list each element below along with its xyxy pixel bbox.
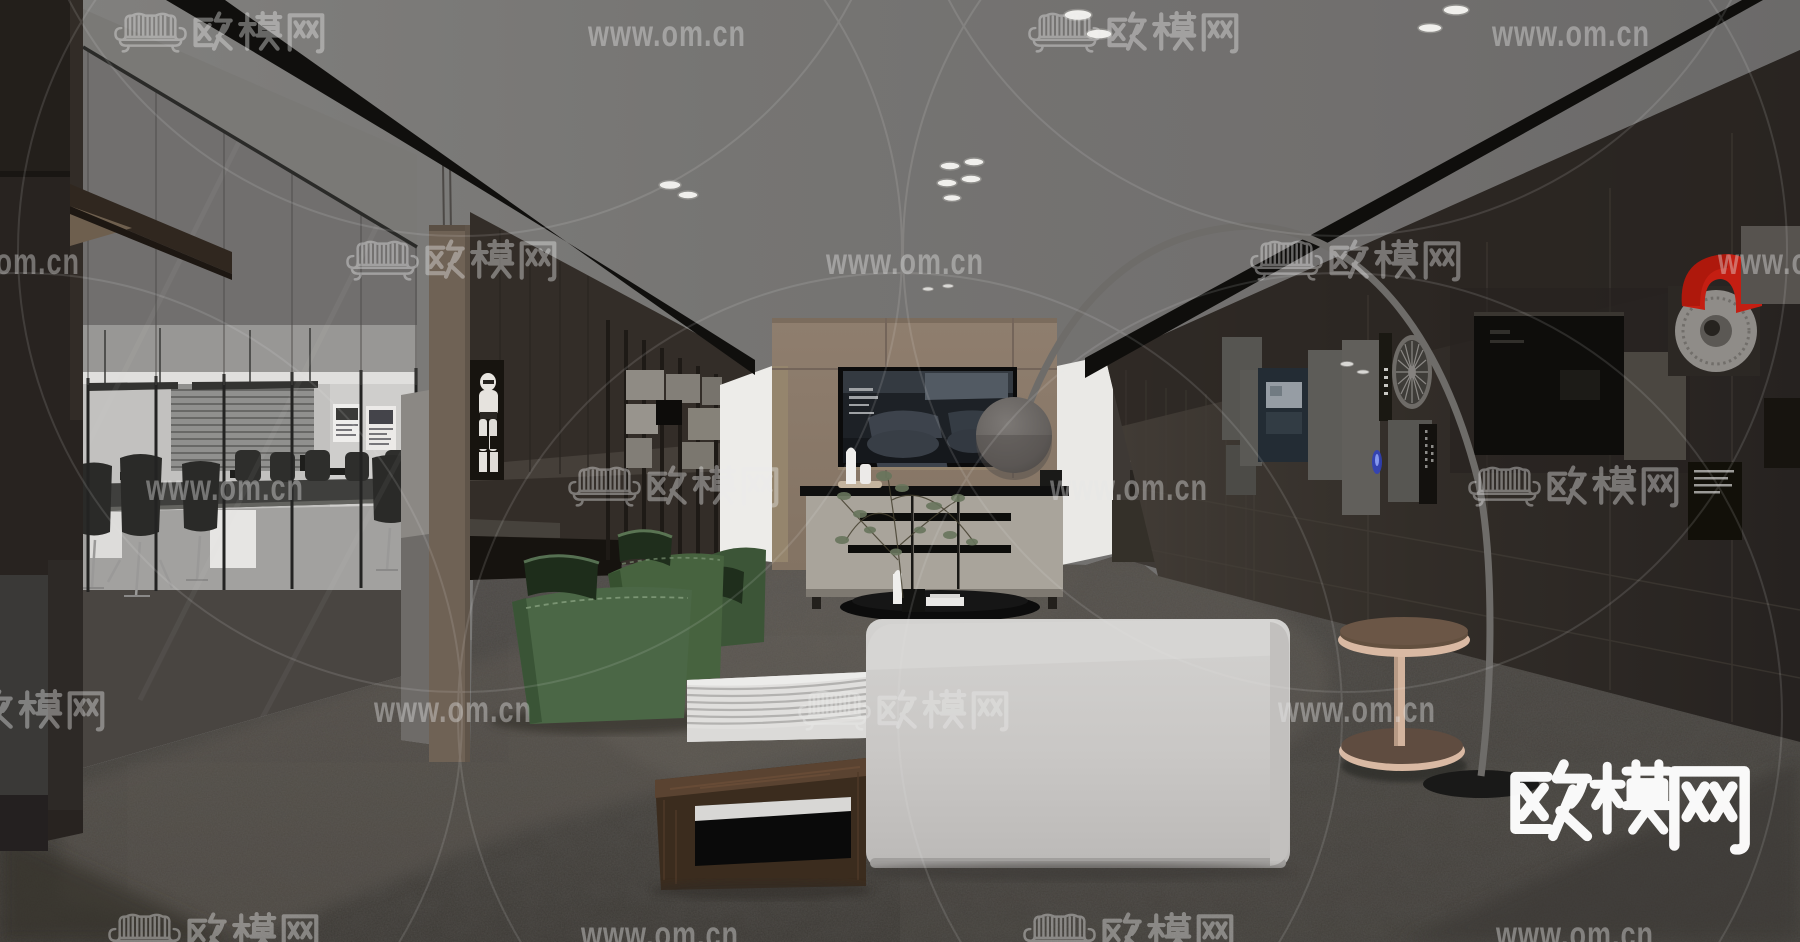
- svg-text:www.om.cn: www.om.cn: [1495, 914, 1654, 942]
- svg-text:www.om.cn: www.om.cn: [1491, 13, 1650, 54]
- svg-text:www.om.cn: www.om.cn: [145, 467, 304, 508]
- svg-text:www.om.cn: www.om.cn: [373, 689, 532, 730]
- svg-text:www.om.cn: www.om.cn: [825, 241, 984, 282]
- svg-text:www.om.cn: www.om.cn: [0, 241, 80, 282]
- svg-text:www.om.cn: www.om.cn: [587, 13, 746, 54]
- svg-text:www.om.cn: www.om.cn: [1277, 689, 1436, 730]
- svg-text:www.om.cn: www.om.cn: [580, 914, 739, 942]
- svg-text:www.om.cn: www.om.cn: [1049, 467, 1208, 508]
- svg-text:www.om.cn: www.om.cn: [1717, 241, 1800, 282]
